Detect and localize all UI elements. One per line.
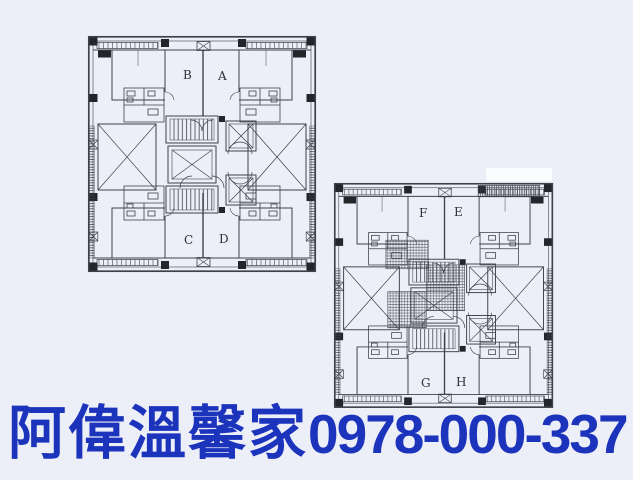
unit-label-g: G bbox=[421, 376, 431, 390]
unit-label-f: F bbox=[419, 206, 427, 220]
unit-label-a: A bbox=[217, 69, 227, 83]
floor-plan-lower-right bbox=[335, 184, 553, 407]
unit-label-e: E bbox=[454, 205, 463, 219]
unit-label-c: C bbox=[184, 233, 193, 247]
unit-label-h: H bbox=[456, 375, 466, 389]
ad-banner: 阿偉溫馨家0978-000-337 bbox=[8, 404, 630, 465]
advertiser-name: 阿偉溫馨家 bbox=[8, 404, 308, 465]
scan-white-patch bbox=[486, 168, 552, 181]
phone-number: 0978-000-337 bbox=[308, 406, 627, 464]
unit-label-d: D bbox=[219, 232, 229, 246]
floor-plan-upper-left bbox=[89, 37, 315, 271]
unit-label-b: B bbox=[183, 68, 192, 82]
